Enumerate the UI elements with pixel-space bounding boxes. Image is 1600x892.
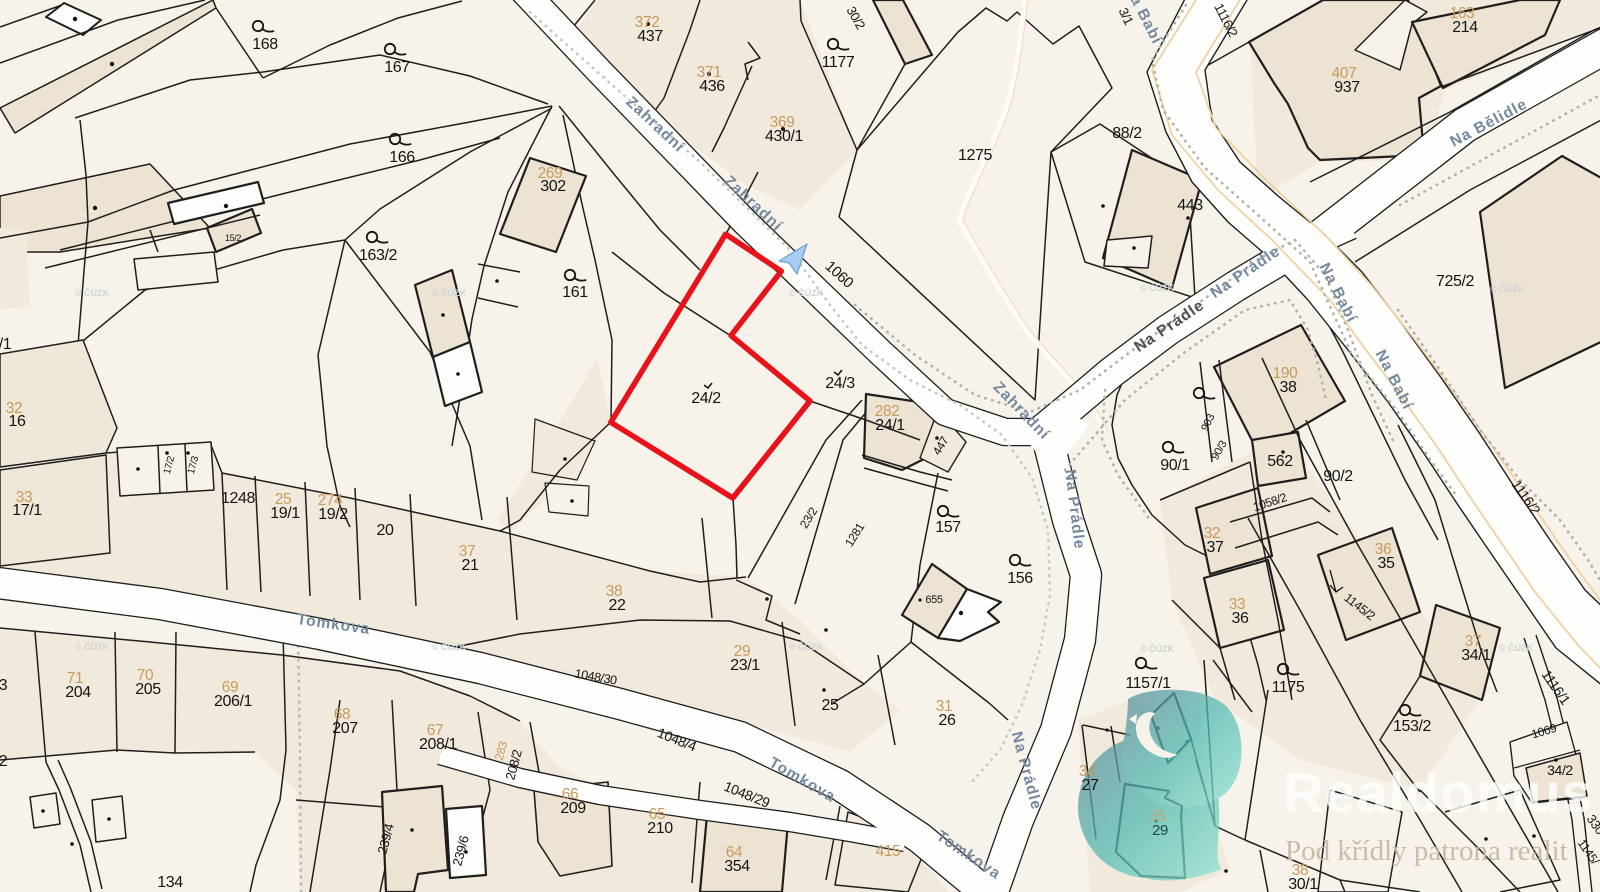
svg-text:34/1: 34/1 xyxy=(1461,647,1491,664)
svg-text:156: 156 xyxy=(1007,570,1033,587)
svg-text:34/2: 34/2 xyxy=(1547,762,1573,778)
svg-text:415: 415 xyxy=(876,843,901,860)
svg-text:38: 38 xyxy=(1280,379,1297,396)
svg-text:/1: /1 xyxy=(0,336,12,353)
svg-text:35: 35 xyxy=(1378,555,1395,572)
svg-text:© ČÚZK: © ČÚZK xyxy=(75,287,110,298)
svg-text:437: 437 xyxy=(637,28,663,45)
svg-text:134: 134 xyxy=(157,874,183,891)
svg-text:1157/1: 1157/1 xyxy=(1125,675,1171,692)
svg-text:Pod křídly patrona realit: Pod křídly patrona realit xyxy=(1285,835,1568,867)
svg-text:725/2: 725/2 xyxy=(1436,273,1475,290)
svg-text:1177: 1177 xyxy=(822,54,855,71)
svg-text:© ČÚZK: © ČÚZK xyxy=(75,641,110,652)
svg-text:© ČÚZK: © ČÚZK xyxy=(1490,283,1525,294)
svg-text:168: 168 xyxy=(252,36,278,53)
svg-text:205: 205 xyxy=(135,681,161,698)
svg-text:302: 302 xyxy=(540,178,566,195)
svg-text:36: 36 xyxy=(1232,610,1249,627)
svg-text:157: 157 xyxy=(935,519,961,536)
svg-text:90/1: 90/1 xyxy=(1160,457,1190,474)
svg-text:29: 29 xyxy=(1152,822,1168,839)
svg-text:354: 354 xyxy=(724,858,750,875)
svg-text:© ČÚZK: © ČÚZK xyxy=(1499,642,1534,653)
svg-text:© ČÚZK: © ČÚZK xyxy=(1140,643,1175,654)
svg-text:1175: 1175 xyxy=(1272,679,1305,696)
svg-text:209: 209 xyxy=(560,800,586,817)
svg-text:© ČÚZK: © ČÚZK xyxy=(1140,282,1175,293)
svg-text:21: 21 xyxy=(462,557,479,574)
svg-text:655: 655 xyxy=(925,594,942,606)
svg-text:16: 16 xyxy=(9,413,26,430)
svg-text:562: 562 xyxy=(1267,453,1293,470)
svg-text:443: 443 xyxy=(1177,197,1203,214)
svg-text:167: 167 xyxy=(384,59,410,76)
svg-text:© ČÚZK: © ČÚZK xyxy=(789,287,824,298)
svg-text:430/1: 430/1 xyxy=(765,128,804,145)
svg-text:1248: 1248 xyxy=(221,490,255,507)
svg-text:210: 210 xyxy=(647,820,673,837)
svg-text:37: 37 xyxy=(1207,539,1224,556)
svg-text:2: 2 xyxy=(0,753,8,770)
svg-text:20: 20 xyxy=(377,522,394,539)
svg-text:88/2: 88/2 xyxy=(1112,125,1142,142)
svg-text:90/2: 90/2 xyxy=(1323,468,1353,485)
svg-text:166: 166 xyxy=(389,149,415,166)
svg-text:24/3: 24/3 xyxy=(825,375,855,392)
svg-text:207: 207 xyxy=(332,720,358,737)
svg-text:15/2: 15/2 xyxy=(225,233,241,243)
svg-text:214: 214 xyxy=(1452,19,1478,36)
svg-text:26: 26 xyxy=(939,712,956,729)
svg-text:© ČÚZK: © ČÚZK xyxy=(432,641,467,652)
svg-text:22: 22 xyxy=(609,597,626,614)
svg-text:161: 161 xyxy=(562,284,588,301)
svg-text:937: 937 xyxy=(1334,79,1360,96)
svg-text:436: 436 xyxy=(699,78,725,95)
svg-text:© ČÚZK: © ČÚZK xyxy=(789,641,824,652)
svg-text:© ČÚZK: © ČÚZK xyxy=(432,287,467,298)
svg-text:19/2: 19/2 xyxy=(318,506,348,523)
svg-text:206/1: 206/1 xyxy=(214,693,253,710)
svg-text:24/2: 24/2 xyxy=(691,390,721,407)
svg-text:204: 204 xyxy=(65,684,91,701)
svg-text:24/1: 24/1 xyxy=(875,417,905,434)
svg-text:1275: 1275 xyxy=(958,147,992,164)
svg-text:208/1: 208/1 xyxy=(419,736,458,753)
svg-text:23/1: 23/1 xyxy=(730,657,760,674)
svg-text:27: 27 xyxy=(1082,777,1099,794)
svg-text:163/2: 163/2 xyxy=(359,247,398,264)
svg-text:17/1: 17/1 xyxy=(12,502,42,519)
svg-text:25: 25 xyxy=(822,697,839,714)
svg-text:19/1: 19/1 xyxy=(270,505,300,522)
svg-text:3: 3 xyxy=(0,677,8,694)
svg-text:30/1: 30/1 xyxy=(1288,876,1318,892)
svg-text:153/2: 153/2 xyxy=(1393,718,1432,735)
